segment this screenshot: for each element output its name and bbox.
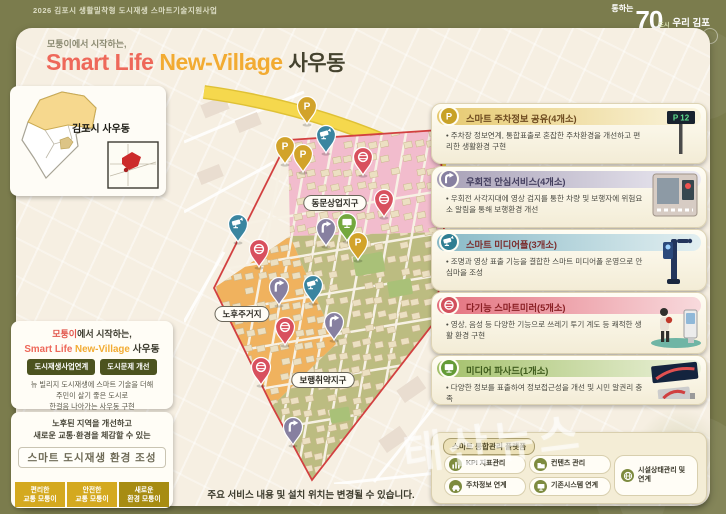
service-description: • 조명과 영상 표출 기능을 결합한 스마트 미디어폴 운영으로 안심마을 조…	[446, 257, 646, 278]
goals-lead: 노후된 지역을 개선하고 새로운 교통·환경을 체감할 수 있는	[11, 418, 173, 442]
intro-subtitle-accent: 모퉁이	[52, 329, 77, 339]
intro-title: Smart Life New-Village 사우동	[11, 341, 173, 355]
goal-column-safety: 안전한 교통 모퉁이 마을을 안전하게	[67, 473, 117, 514]
title-part-en1: Smart Life	[46, 49, 153, 75]
facility-icon	[621, 469, 634, 482]
service-card-mirror: 다기능 스마트미러(5개소)• 영상, 음성 등 다양한 기능으로 쓰레기 투기…	[431, 292, 707, 354]
service-title: 스마트 주차정보 공유(4개소)	[466, 111, 577, 125]
footer-caption: 주요 서비스 내용 및 설치 위치는 변경될 수 있습니다.	[156, 487, 466, 501]
intro-title-en1: Smart Life	[24, 344, 72, 355]
map-pin-cctv	[229, 215, 248, 245]
facade-icon	[439, 358, 459, 378]
gimpo-outline-map: 김포시 사우동	[10, 86, 166, 196]
platform-label: 스마트 통합관리 플랫폼	[443, 438, 535, 455]
svg-text:P: P	[300, 150, 307, 161]
legacy-icon	[534, 480, 547, 493]
service-illustration	[649, 172, 701, 227]
goals-heading: 스마트 도시재생 환경 조성	[18, 447, 166, 468]
service-illustration: P 12	[649, 109, 701, 163]
intro-subtitle-rest: 에서 시작하는,	[77, 329, 132, 339]
service-illustration	[649, 235, 701, 290]
service-title: 우회전 안심서비스(4개소)	[466, 174, 565, 188]
zone-label: 노후주거지	[215, 307, 269, 322]
platform-button-legacy[interactable]: 기존시스템 연계	[529, 477, 611, 496]
service-description: • 영상, 음성 등 다양한 기능으로 쓰레기 투기 계도 등 쾌적한 생활 환…	[446, 320, 646, 341]
svg-text:P 12: P 12	[673, 114, 690, 123]
goals-panel: 노후된 지역을 개선하고 새로운 교통·환경을 체감할 수 있는 스마트 도시재…	[11, 412, 173, 508]
goal-column-parking: 편리한 교통 모퉁이 주차환경을 편리하게	[15, 473, 65, 514]
page-title: Smart Life New-Village 사우동	[46, 47, 345, 77]
main-card: 모퉁이에서 시작하는, Smart Life New-Village 사우동 김…	[16, 28, 710, 506]
intro-title-ko: 사우동	[133, 344, 160, 355]
title-part-en2: New-Village	[159, 49, 282, 75]
svg-text:P: P	[446, 111, 452, 121]
logo-slogan: 통하는	[611, 4, 633, 13]
button-city-problem-improve[interactable]: 도시문제 개선	[100, 359, 156, 375]
turn-icon	[439, 169, 459, 189]
title-part-ko: 사우동	[288, 52, 344, 75]
cctv-icon	[439, 232, 459, 252]
platform-box: 스마트 통합관리 플랫폼 KPI 지표관리컨텐츠 관리주차정보 연계기존시스템 …	[431, 432, 707, 504]
intro-buttons: 도시재생사업연계 도시문제 개선	[11, 359, 173, 375]
intro-title-en2: New-Village	[75, 344, 130, 355]
mirror-icon	[439, 295, 459, 315]
service-card-facade: 미디어 파사드(1개소)• 다양한 정보를 표출하여 정보접근성을 개선 및 시…	[431, 355, 707, 405]
service-title: 다기능 스마트미러(5개소)	[466, 300, 565, 314]
locator-label: 김포시 사우동	[72, 122, 130, 135]
parking-icon: P	[439, 106, 459, 126]
district-map: 동문상업지구노후주거지보행취약지구 PPPP	[184, 82, 446, 484]
svg-text:동문상업지구: 동문상업지구	[312, 198, 359, 208]
platform-button-facility[interactable]: 시설상태관리 및 연계	[614, 455, 698, 496]
content-icon	[534, 458, 547, 471]
intro-subtitle: 모퉁이에서 시작하는,	[11, 327, 173, 340]
svg-text:노후주거지: 노후주거지	[222, 309, 261, 319]
button-urban-regeneration-link[interactable]: 도시재생사업연계	[27, 359, 95, 375]
svg-text:보행취약지구: 보행취약지구	[300, 375, 347, 385]
service-card-parking: P스마트 주차정보 공유(4개소)• 주차장 정보연계, 통합표출로 혼잡한 주…	[431, 103, 707, 164]
program-title: 2026 김포시 생활밀착형 도시재생 스마트기술지원사업	[33, 5, 217, 16]
svg-text:P: P	[304, 102, 311, 113]
svg-text:P: P	[282, 142, 289, 153]
city-locator-map: 김포시 사우동	[10, 86, 166, 196]
kpi-icon	[449, 458, 462, 471]
svg-text:P: P	[355, 238, 362, 249]
zone-label: 동문상업지구	[304, 196, 366, 211]
service-illustration	[649, 361, 701, 404]
service-description: • 우회전 사각지대에 영상 검지를 통한 차량 및 보행자에 위험요소 알림을…	[446, 194, 646, 215]
intro-description: 뉴 빌리지 도시재생에 스마트 기술을 더해 주민이 살기 좋은 도시로 한걸음…	[11, 380, 173, 412]
platform-button-content[interactable]: 컨텐츠 관리	[529, 455, 611, 474]
zone-label: 보행취약지구	[292, 373, 354, 388]
poster: 2026 김포시 생활밀착형 도시재생 스마트기술지원사업 통하는70도시우리 …	[0, 0, 726, 514]
intro-panel: 모퉁이에서 시작하는, Smart Life New-Village 사우동 도…	[11, 321, 173, 409]
goal-columns: 편리한 교통 모퉁이 주차환경을 편리하게 안전한 교통 모퉁이 마을을 안전하…	[15, 473, 169, 514]
service-card-turn: 우회전 안심서비스(4개소)• 우회전 사각지대에 영상 검지를 통한 차량 및…	[431, 166, 707, 228]
service-title: 스마트 미디어폴(3개소)	[466, 237, 557, 251]
service-illustration	[649, 298, 701, 353]
service-title: 미디어 파사드(1개소)	[466, 363, 548, 377]
platform-button-kpi[interactable]: KPI 지표관리	[444, 455, 526, 474]
service-description: • 다양한 정보를 표출하여 정보접근성을 개선 및 시민 알권리 충족	[446, 383, 646, 404]
service-description: • 주차장 정보연계, 통합표출로 혼잡한 주차환경을 개선하고 편리한 생활환…	[446, 131, 646, 152]
service-card-cctv: 스마트 미디어폴(3개소)• 조명과 영상 표출 기능을 결합한 스마트 미디어…	[431, 229, 707, 291]
